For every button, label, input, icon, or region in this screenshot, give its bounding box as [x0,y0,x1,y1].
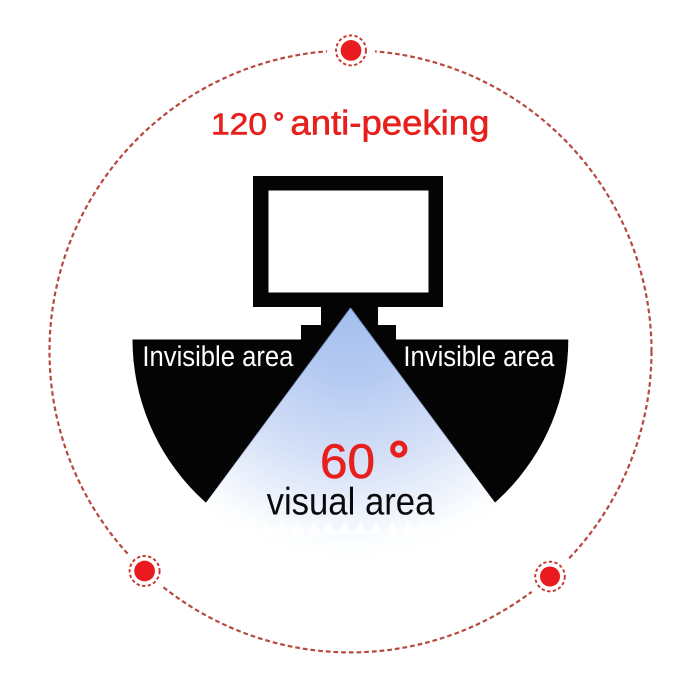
svg-text:Invisible area: Invisible area [403,341,554,373]
svg-text:anti-peeking: anti-peeking [290,105,489,143]
svg-text:120: 120 [211,108,267,142]
svg-text:visual area: visual area [267,480,435,523]
svg-text:Invisible area: Invisible area [142,341,293,373]
